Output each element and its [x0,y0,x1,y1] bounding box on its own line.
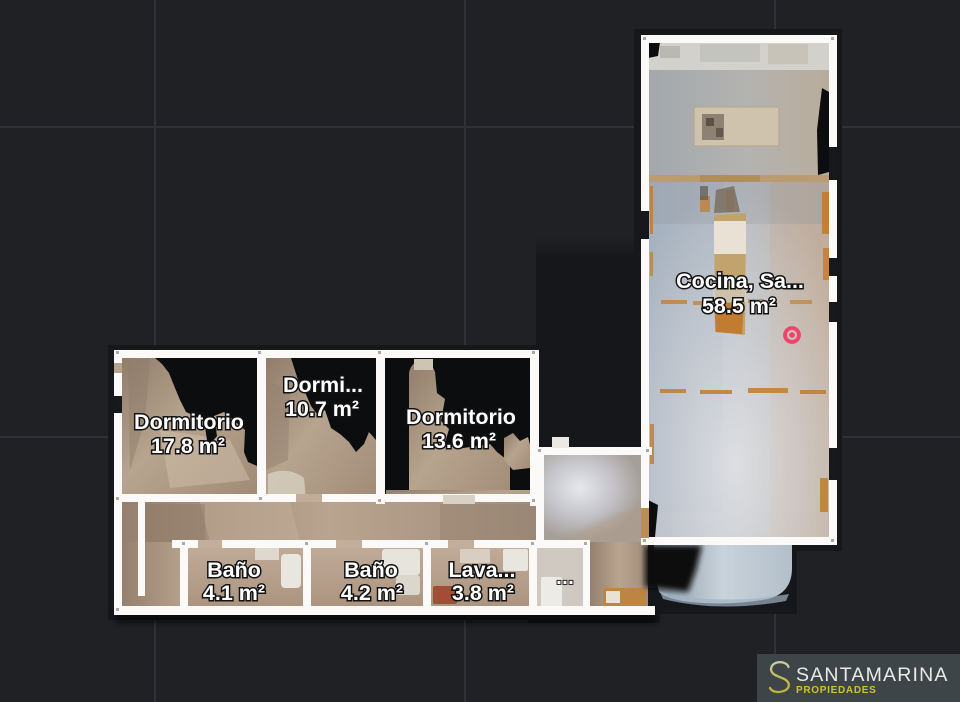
svg-text:PROPIEDADES: PROPIEDADES [796,685,877,696]
svg-text:Dormi...: Dormi... [283,373,363,397]
svg-text:Baño: Baño [207,558,261,582]
svg-text:4.2 m²: 4.2 m² [341,581,403,605]
svg-text:Dormitorio: Dormitorio [406,405,516,429]
svg-text:13.6 m²: 13.6 m² [422,429,496,453]
svg-text:Cocina, Sa...: Cocina, Sa... [676,269,804,293]
svg-text:Baño: Baño [344,558,398,582]
svg-text:Lava...: Lava... [449,558,516,582]
svg-text:...: ... [556,565,574,589]
svg-text:58.5 m²: 58.5 m² [702,294,776,318]
svg-text:3.8 m²: 3.8 m² [452,581,514,605]
svg-text:10.7 m²: 10.7 m² [285,397,359,421]
svg-text:Dormitorio: Dormitorio [134,410,244,434]
svg-text:17.8 m²: 17.8 m² [151,434,225,458]
svg-text:4.1 m²: 4.1 m² [203,581,265,605]
svg-text:SANTAMARINA: SANTAMARINA [796,664,949,686]
